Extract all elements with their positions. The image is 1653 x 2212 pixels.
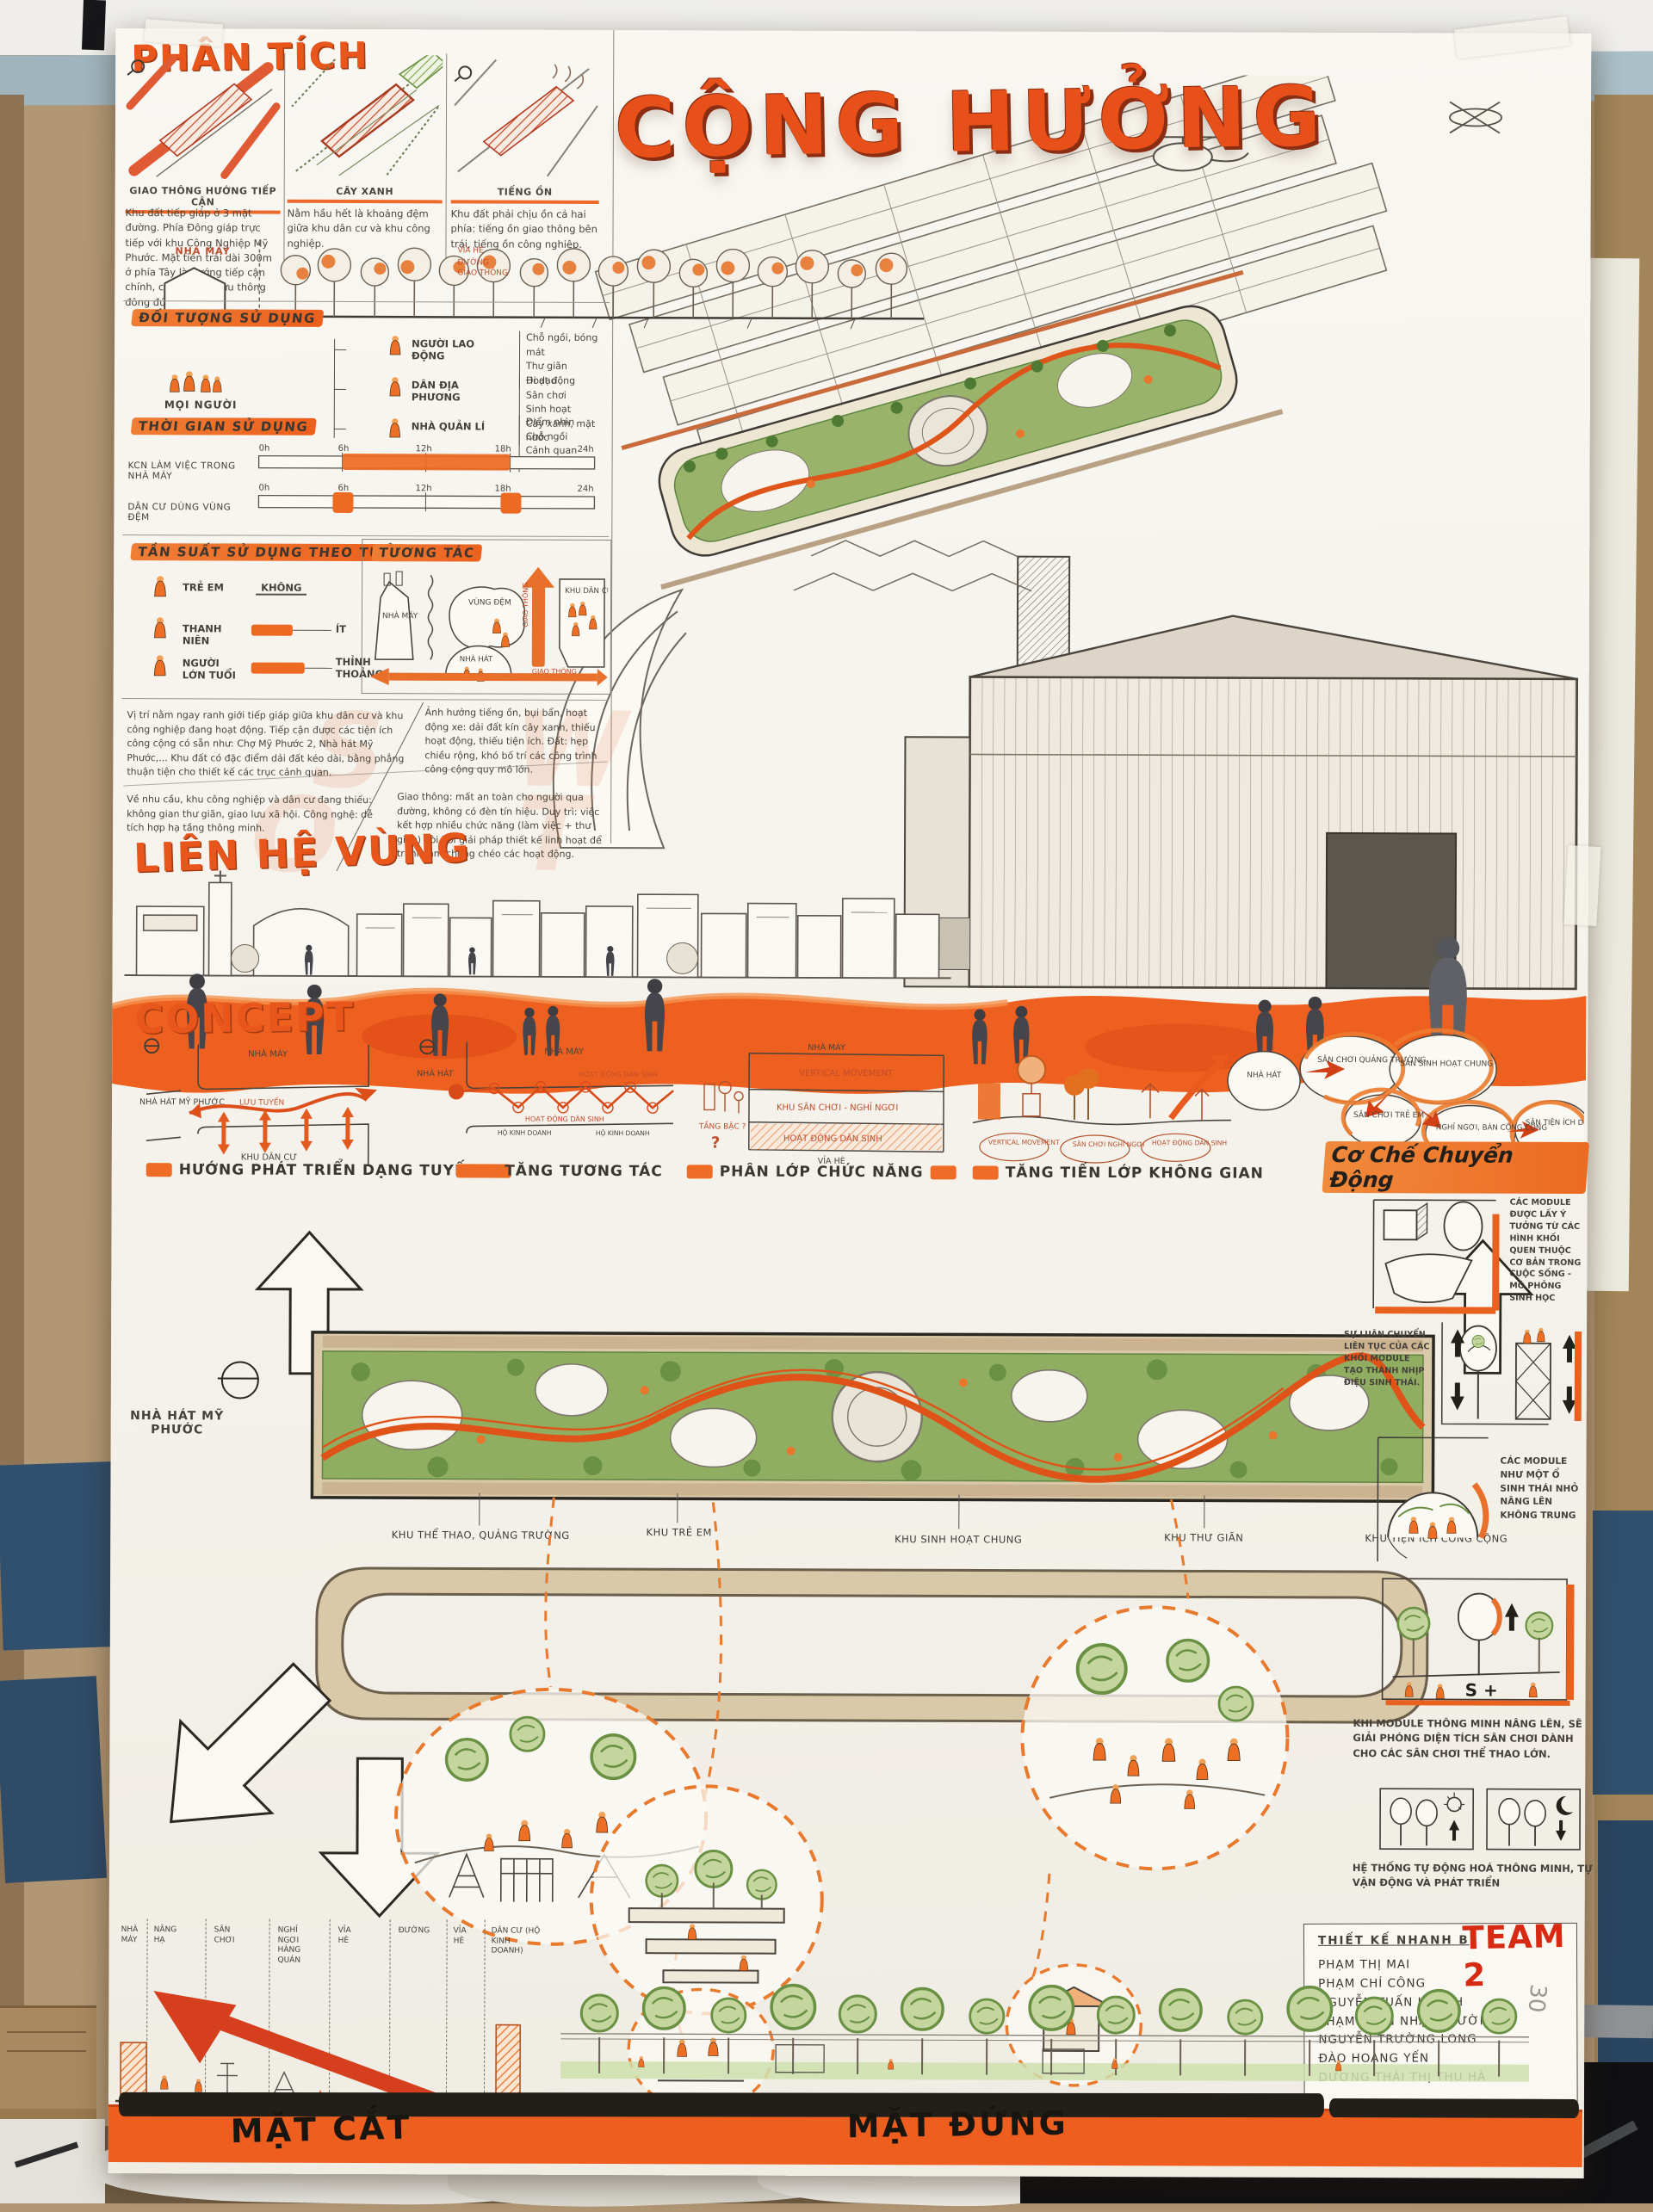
svg-text:HOẠT ĐỘNG DÂN SINH: HOẠT ĐỘNG DÂN SINH: [783, 1133, 882, 1144]
legend-label: NHÀ MÁY: [121, 1925, 145, 1945]
youth-icon: [152, 617, 168, 640]
user-group-label: DÂN ĐỊA PHƯƠNG: [412, 379, 506, 403]
concept-caption: TĂNG TIẾN LỚP KHÔNG GIAN: [973, 1164, 1257, 1182]
users-bracket-tick: [334, 349, 346, 350]
noise-map-sketch: [451, 55, 603, 181]
cardboard-box-lines: [7, 2031, 86, 2033]
plan-theater-label: NHÀ HÁT MỸ PHƯỚC: [121, 1409, 233, 1437]
freq-bar: [251, 663, 305, 674]
detail-circle-gathering: [1015, 1600, 1295, 1876]
svg-text:NHÀ HÁT: NHÀ HÁT: [417, 1068, 454, 1078]
master-plan-band: [308, 1329, 1437, 1505]
mechanism-note: CÁC MODULE NHƯ MỘT Ổ SINH THÁI NHỎ NÂNG …: [1500, 1455, 1586, 1523]
panel-caption: CÂY XANH: [288, 186, 443, 204]
tape-strip: [1563, 845, 1600, 926]
svg-text:24h: 24h: [578, 445, 594, 454]
svg-text:VERTICAL MOVEMENT: VERTICAL MOVEMENT: [799, 1069, 894, 1078]
time-heading: THỜI GIAN SỬ DỤNG: [132, 417, 316, 436]
concept-panel-layers: NHÀ MÁY VERTICAL MOVEMENT KHU SÂN CHƠI -…: [697, 1039, 957, 1169]
plan-compass-line: [218, 1377, 259, 1379]
navy-letter-fragment: [1593, 1511, 1653, 1795]
module-lift-sketch: [1437, 1317, 1583, 1430]
module-shapes-sketch: [1370, 1196, 1501, 1316]
users-bracket-tick: [334, 389, 346, 390]
pencil-note: 30: [1522, 1983, 1551, 2014]
svg-text:KHU DÂN CƯ: KHU DÂN CƯ: [565, 585, 608, 596]
elevation-label: MẶT ĐỨNG: [847, 2104, 1069, 2146]
interaction-heading: TƯƠNG TÁC: [372, 544, 481, 561]
svg-text:NHÀ HÁT: NHÀ HÁT: [460, 653, 493, 664]
svg-text:6h: 6h: [338, 444, 350, 454]
cardboard-box-lines: [7, 2050, 86, 2052]
svg-text:NHÀ HÁT: NHÀ HÁT: [1247, 1070, 1282, 1080]
team-subtitle: THIẾT KẾ NHANH B: [1318, 1933, 1470, 1948]
concept-panel-linear: NHÀ MÁY KHU DÂN CƯ NHÀ HÁT MỸ PHƯỚC LƯU …: [138, 1037, 406, 1167]
svg-text:24h: 24h: [577, 485, 593, 494]
users-root-label: MỌI NGƯỜI: [164, 399, 238, 411]
black-clip: [82, 0, 106, 50]
freq-label: THANH NIÊN: [183, 622, 243, 646]
mechanism-note: HỆ THỐNG TỰ ĐỘNG HOÁ THÔNG MINH, TỰ VẬN …: [1353, 1861, 1594, 1891]
svg-text:GIAO THÔNG: GIAO THÔNG: [532, 666, 577, 676]
cardboard-box: [0, 2005, 96, 2133]
people-group-icon: [168, 366, 225, 395]
freq-label: NGƯỜI LỚN TUỔI: [183, 657, 243, 681]
freq-label: TRẺ EM: [183, 581, 224, 593]
legend-label: NGHỈ NGƠI HÀNG QUÁN: [277, 1926, 319, 1967]
worker-icon: [388, 336, 402, 356]
navy-letter-fragment: [1598, 1820, 1653, 2079]
svg-text:0h: 0h: [259, 444, 270, 454]
freq-value: KHÔNG: [256, 582, 306, 596]
module-sport-sketch: S +: [1379, 1575, 1578, 1707]
resident-icon: [388, 377, 402, 398]
child-icon: [152, 576, 168, 598]
svg-text:SÂN SINH HOẠT CHUNG: SÂN SINH HOẠT CHUNG: [1400, 1058, 1493, 1068]
mechanism-note: SỰ LUÂN CHUYỂN LIÊN TỤC CỦA CÁC KHỐI MOD…: [1344, 1329, 1430, 1389]
legend-label: NÂNG HẠ: [154, 1925, 183, 1945]
svg-text:HOẠT ĐỘNG DÂN SINH: HOẠT ĐỘNG DÂN SINH: [579, 1069, 658, 1079]
svg-text:LƯU TUYẾN: LƯU TUYẾN: [239, 1097, 284, 1108]
svg-text:HOẠT ĐỘNG DÂN SINH: HOẠT ĐỘNG DÂN SINH: [1152, 1139, 1227, 1146]
svg-text:12h: 12h: [415, 484, 431, 493]
svg-text:TẦNG BẬC ?: TẦNG BẬC ?: [698, 1120, 746, 1131]
factory-perspective-sketch: [904, 556, 1577, 989]
freq-bar: [251, 625, 293, 636]
users-bracket-tick: [334, 429, 346, 429]
svg-text:6h: 6h: [337, 484, 349, 493]
svg-text:SÂN CHƠI TRẺ EM: SÂN CHƠI TRẺ EM: [1353, 1109, 1424, 1120]
interaction-diagram: NHÀ MÁY VÙNG ĐỆM GIAO THÔNG KHU DÂN CƯ N…: [363, 565, 609, 691]
navy-letter-fragment: [0, 1676, 107, 1883]
mechanism-heading: Cơ Chế Chuyển Động: [1324, 1141, 1588, 1194]
concept-caption: PHÂN LỚP CHỨC NĂNG: [687, 1163, 945, 1181]
panel-caption: TIẾNG ỒN: [451, 186, 599, 204]
elevation-trees-sketch: [560, 1951, 1530, 2108]
freq-line: [293, 630, 331, 631]
presentation-poster: CỘNG HƯỞNG PHÂN TÍCH GIAO THÔNG HƯỚNG TI…: [108, 28, 1592, 2178]
svg-text:18h: 18h: [494, 485, 511, 494]
svg-text:12h: 12h: [416, 444, 432, 454]
traffic-map-sketch: [126, 54, 282, 180]
greenery-map-sketch: [288, 55, 443, 181]
concept-caption: TĂNG TƯƠNG TÁC: [456, 1162, 663, 1180]
photo-of-presentation-board: { "scene": {"pencil_note": "30"}, "poste…: [0, 0, 1653, 2203]
svg-text:HỘ KINH DOANH: HỘ KINH DOANH: [596, 1129, 650, 1137]
user-group-label: NGƯỜI LAO ĐỘNG: [412, 337, 506, 361]
time-row-label: KCN LÀM VIỆC TRONG NHÀ MÁY: [128, 460, 245, 481]
freq-value: ÍT: [336, 623, 346, 635]
svg-text:SÂN CHƠI NGHỈ NGƠI: SÂN CHƠI NGHỈ NGƠI: [1073, 1140, 1145, 1148]
svg-text:0h: 0h: [258, 484, 269, 493]
buffer-sidewalk-label: VỈA HÈ: [457, 246, 483, 256]
svg-text:KHU SÂN CHƠI - NGHỈ NGƠI: KHU SÂN CHƠI - NGHỈ NGƠI: [777, 1101, 898, 1113]
legend-label: SÂN CHƠI: [214, 1925, 249, 1946]
svg-text:SÂN TIỆN ÍCH DỊCH VỤ: SÂN TIỆN ÍCH DỊCH VỤ: [1526, 1117, 1584, 1128]
cardboard-left-edge: [0, 95, 24, 2203]
users-heading: ĐỐI TƯỢNG SỬ DỤNG: [132, 309, 323, 327]
usage-timeline-chart: 0h6h 12h18h 24h 0h6h 12h18h 24h: [243, 441, 604, 533]
user-group-label: NHÀ QUẢN LÍ: [412, 420, 506, 432]
legend-label: DÂN CƯ (HỘ KINH DOANH): [492, 1927, 542, 1957]
mechanism-note: CÁC MODULE ĐƯỢC LẤY Ý TƯỞNG TỪ CÁC HÌNH …: [1509, 1197, 1585, 1305]
section-label: MẶT CẮT: [230, 2108, 412, 2150]
svg-text:GIAO THÔNG: GIAO THÔNG: [520, 583, 529, 627]
legend-label: ĐƯỜNG: [399, 1926, 433, 1937]
manager-icon: [388, 418, 402, 439]
time-row-label: DÂN CƯ DÙNG VÙNG ĐỆM: [127, 502, 244, 522]
elder-icon: [152, 655, 168, 677]
svg-text:NHÀ MÁY: NHÀ MÁY: [248, 1048, 288, 1060]
poster-title: CỘNG HƯỞNG: [614, 65, 1477, 176]
svg-text:HỘ KINH DOANH: HỘ KINH DOANH: [498, 1129, 552, 1137]
mechanism-note: KHI MODULE THÔNG MINH NÂNG LÊN, SẼ GIẢI …: [1353, 1716, 1590, 1762]
buffer-road-label: ĐƯỜNG GIAO THÔNG: [457, 258, 509, 279]
svg-text:HOẠT ĐỘNG DÂN SINH: HOẠT ĐỘNG DÂN SINH: [525, 1114, 604, 1124]
svg-text:VERTICAL MOVEMENT: VERTICAL MOVEMENT: [988, 1139, 1060, 1146]
svg-text:18h: 18h: [495, 445, 511, 454]
svg-text:NHÀ MÁY: NHÀ MÁY: [808, 1042, 845, 1053]
automation-day-night-sketch: [1378, 1785, 1585, 1853]
svg-text:VÙNG ĐỆM: VÙNG ĐỆM: [468, 596, 511, 607]
svg-text:NHÀ MÁY: NHÀ MÁY: [544, 1046, 585, 1057]
concept-caption: HƯỚNG PHÁT TRIỂN DẠNG TUYẾN: [146, 1161, 422, 1179]
svg-text:S +: S +: [1465, 1679, 1498, 1700]
concept-panel-interaction: NHÀ MÁY NHÀ HÁT HOẠT ĐỘNG DÂN SINH HOẠT …: [415, 1038, 683, 1168]
svg-text:?: ?: [711, 1134, 721, 1152]
freq-line: [305, 668, 332, 669]
bottom-black-band: [1329, 2098, 1579, 2118]
buffer-factory-label: NHÀ MÁY: [175, 245, 230, 256]
legend-label: VỈA HÈ: [454, 1926, 480, 1946]
svg-text:NHÀ MÁY: NHÀ MÁY: [382, 610, 418, 621]
concept-heading: CONCEPT: [134, 993, 355, 1043]
concept-panel-spatial: VERTICAL MOVEMENT SÂN CHƠI NGHỈ NGƠI HOẠ…: [964, 1040, 1232, 1170]
module-habitat-sketch: [1372, 1434, 1494, 1567]
legend-label: VỈA HÈ: [338, 1926, 364, 1946]
